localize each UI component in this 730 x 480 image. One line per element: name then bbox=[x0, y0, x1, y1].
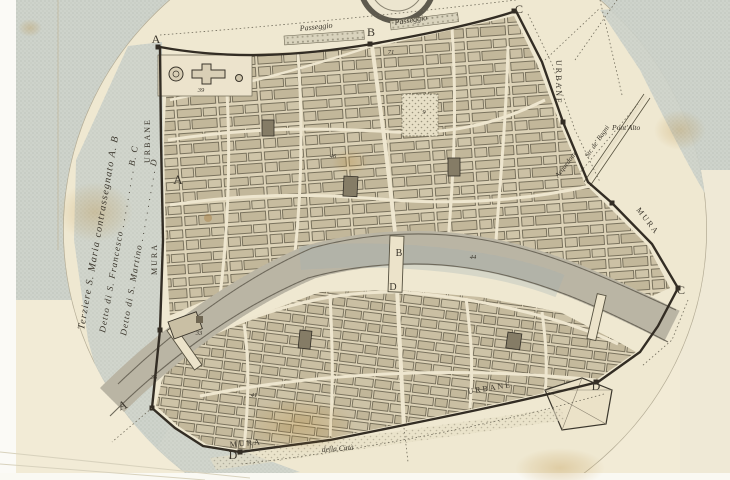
page-edge-left bbox=[0, 0, 16, 480]
pontalto-label: Pont'Alto bbox=[611, 123, 641, 132]
parcel-number: 33 bbox=[195, 330, 203, 337]
marker-nw: A bbox=[152, 32, 161, 46]
parcel-number: 39 bbox=[197, 87, 205, 94]
wall-label-urbane-left: URBANE bbox=[143, 118, 152, 163]
garden-square bbox=[402, 94, 438, 136]
parcel-number: 41 bbox=[251, 392, 258, 399]
baptistery bbox=[169, 67, 183, 81]
marker-s: D bbox=[229, 448, 238, 462]
scanned-map-page: Terziere S. Maria contrassegnato A. B De… bbox=[0, 0, 730, 480]
marker-e: C bbox=[677, 283, 685, 297]
parcel-number: 46 bbox=[330, 153, 337, 160]
marker-n: B bbox=[367, 25, 375, 39]
antique-city-map: Terziere S. Maria contrassegnato A. B De… bbox=[0, 0, 730, 480]
page-edge-bottom bbox=[0, 473, 730, 480]
marker-bridge-north: B bbox=[396, 248, 403, 259]
parcel-number: 35 bbox=[150, 374, 158, 381]
cathedral-square bbox=[158, 55, 252, 96]
parcel-number: 71 bbox=[388, 49, 395, 56]
marker-district-west: A bbox=[173, 172, 183, 187]
marker-ne: C bbox=[515, 2, 523, 16]
marker-se: D bbox=[592, 379, 601, 393]
wall-label-urbane-right: URBANE bbox=[554, 60, 563, 105]
marker-bridge-south: D bbox=[389, 282, 396, 293]
wall-label-mura-left: MURA bbox=[150, 243, 159, 275]
leaning-tower bbox=[236, 75, 243, 82]
parcel-number: 44 bbox=[470, 254, 477, 261]
